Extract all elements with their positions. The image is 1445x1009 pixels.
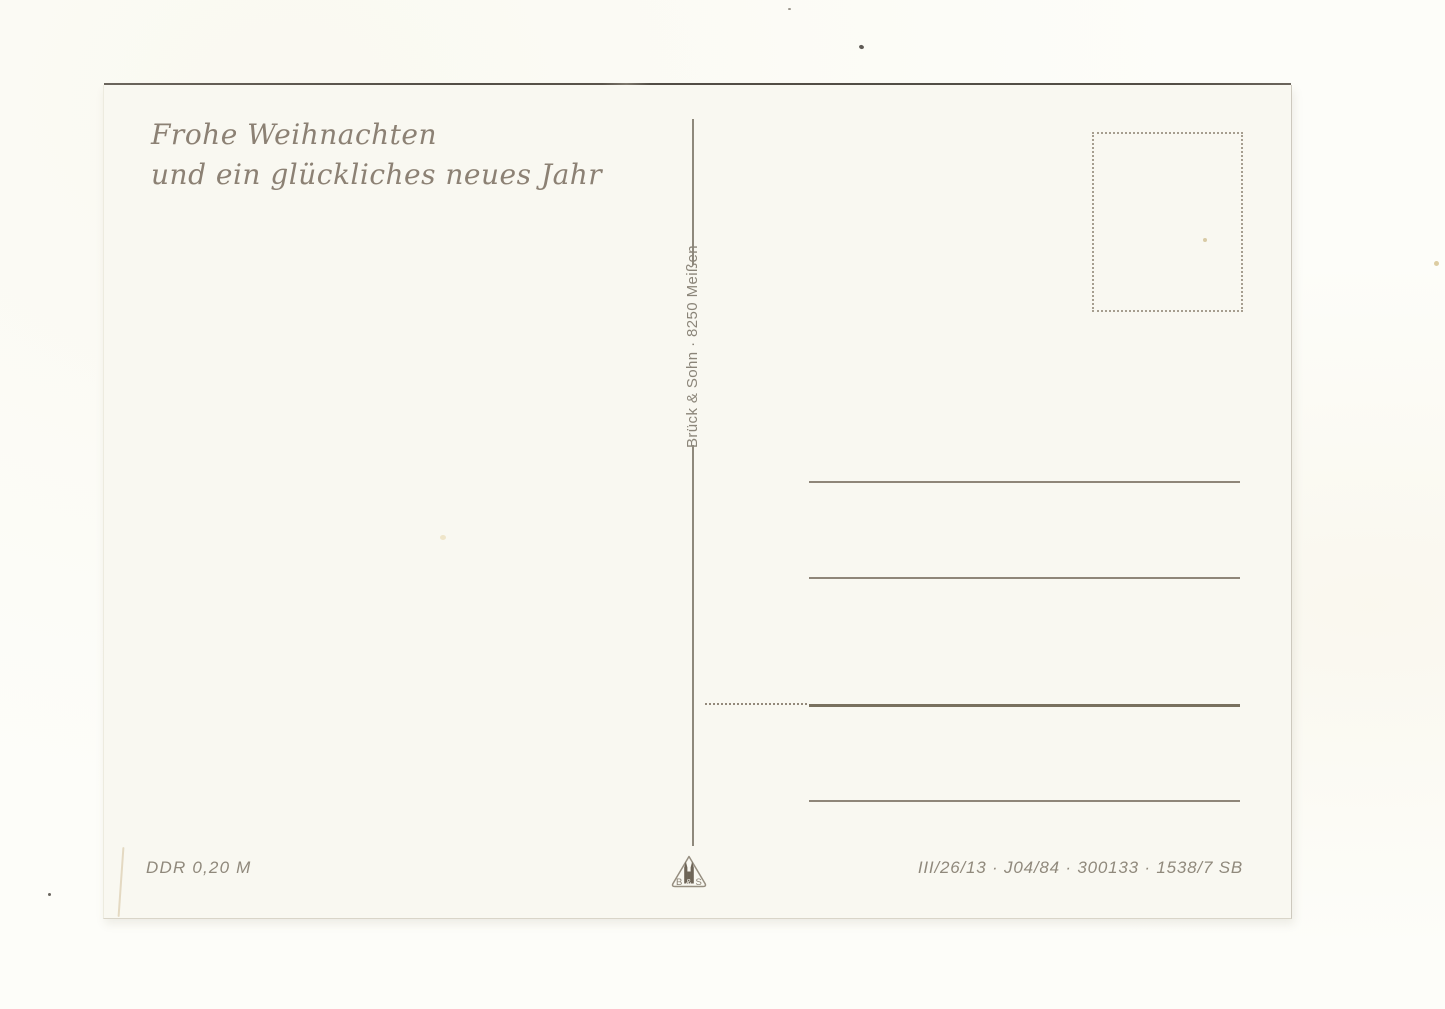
scan-speck [1434,261,1439,266]
center-divider-bottom-segment [692,445,694,846]
center-divider-top-segment [692,119,694,265]
logo-letter-s: S [696,877,702,888]
paper-speck [440,535,446,540]
publisher-logo-icon: B & S [670,854,708,890]
logo-ampersand: & [686,878,692,888]
greeting-text: Frohe Weihnachten und ein glückliches ne… [151,115,602,195]
greeting-line-2: und ein glückliches neues Jahr [151,155,602,195]
denomination-text: DDR 0,20 M [146,858,252,878]
card-top-edge [104,83,1291,85]
postcard-back: Frohe Weihnachten und ein glückliches ne… [103,85,1292,919]
stamp-box [1092,132,1243,312]
scan-speck [788,8,791,10]
scan-speck [858,44,864,49]
address-line-2 [809,577,1240,579]
address-line-4 [809,800,1240,802]
scan-speck [1203,238,1207,242]
logo-letter-b: B [676,877,682,888]
address-line-3 [809,704,1240,707]
paper-crease [118,847,125,917]
publisher-imprint: Brück & Sohn · 8250 Meißen [684,258,704,448]
address-line-3-dotted-lead [705,703,807,705]
scan-background: Frohe Weihnachten und ein glückliches ne… [0,0,1445,1009]
address-line-1 [809,481,1240,483]
greeting-line-1: Frohe Weihnachten [151,115,602,155]
print-code-text: III/26/13 · J04/84 · 300133 · 1538/7 SB [918,858,1243,878]
scan-speck [48,893,51,896]
